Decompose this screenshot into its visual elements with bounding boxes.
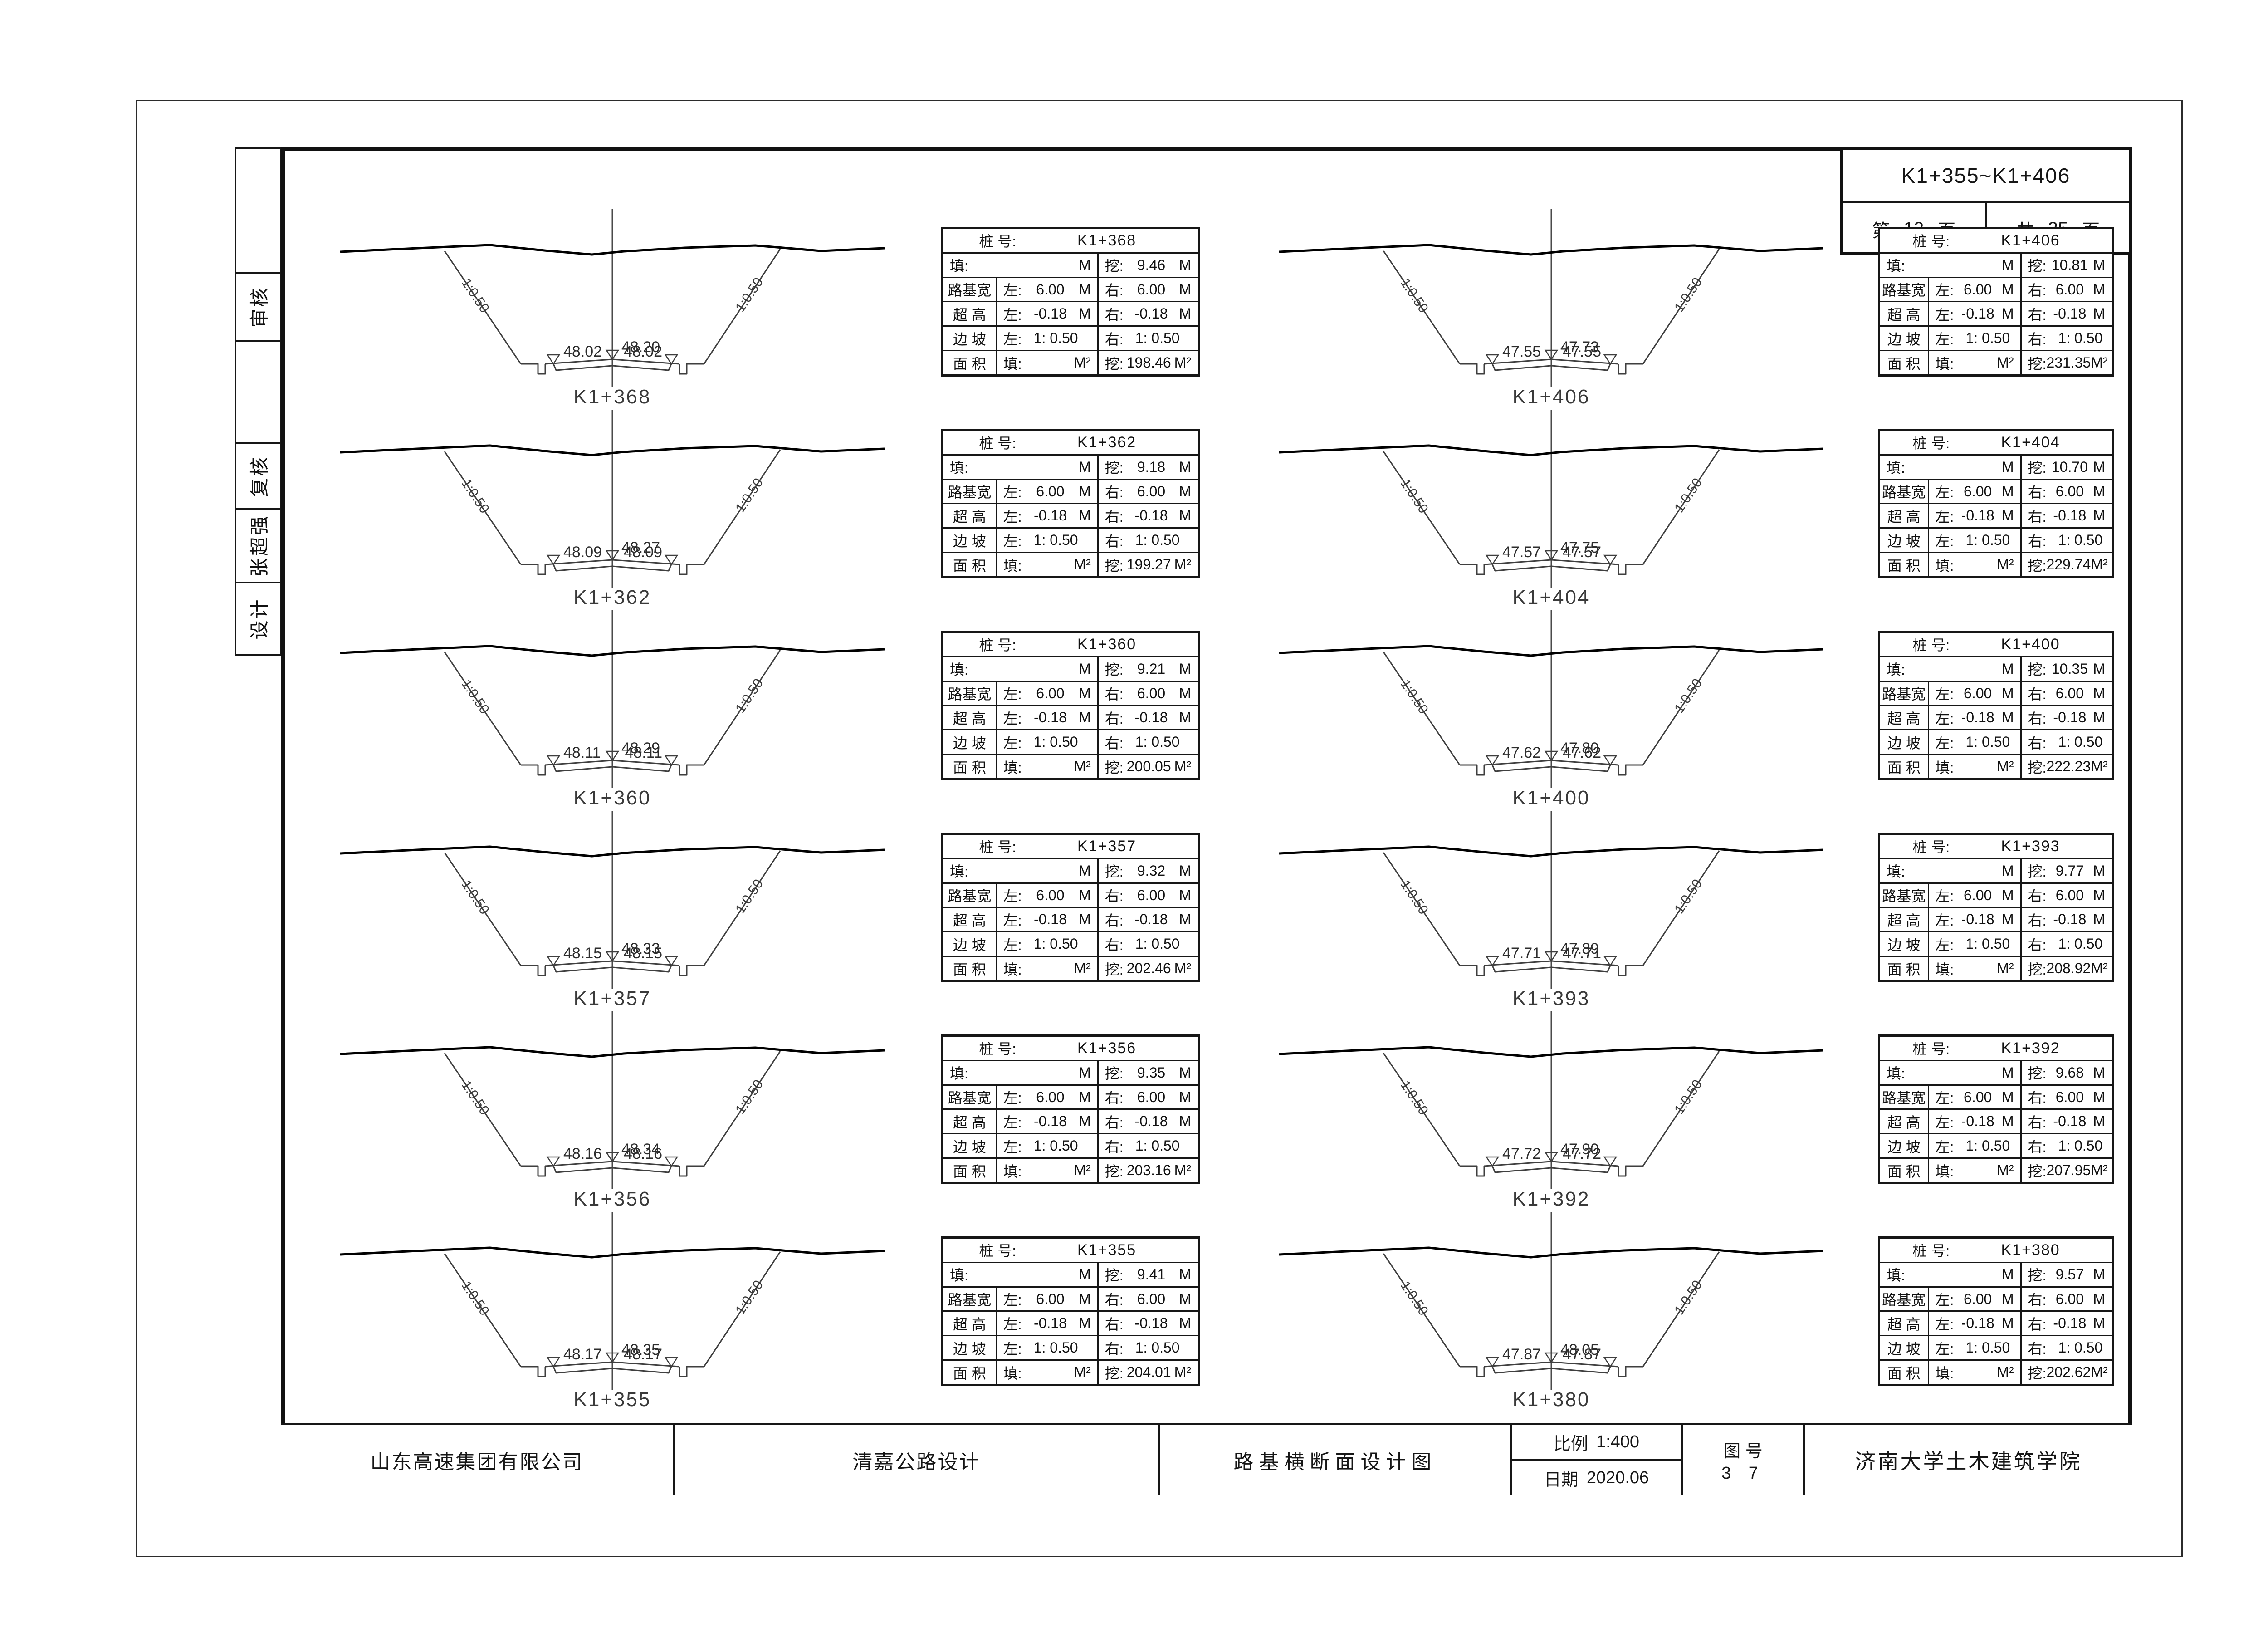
cut-label: 挖: [1105, 456, 1124, 477]
unit-m2: M² [2091, 758, 2107, 775]
station-row-label: 桩 号: [943, 432, 1016, 453]
fill-depth-cell: 填: M [1880, 456, 2020, 479]
area-cut-cell: 挖: 200.05 M² [1097, 755, 1198, 778]
station-row-value: K1+360 [1016, 636, 1198, 653]
slope-left-value: 1: 0.50 [1034, 532, 1078, 549]
station-row-label: 桩 号: [943, 1240, 1016, 1260]
title-block: 山东高速集团有限公司 清嘉公路设计 路基横断面设计图 比例 1:400 日期 2… [281, 1423, 2132, 1495]
cut-label: 挖: [2028, 255, 2047, 275]
roadbed-right-cell: 右: 6.00 M [1097, 1288, 1198, 1311]
side-ditch-left [521, 364, 545, 374]
super-right-value: -0.18 [2053, 507, 2086, 524]
left-label: 左: [1936, 909, 1954, 930]
row-roadbed-width: 路基宽 左: 6.00 M 右: 6.00 M [1880, 277, 2112, 301]
station-row-label: 桩 号: [943, 1038, 1016, 1059]
row-depth: 填: M 挖: 9.35 M [943, 1060, 1198, 1084]
roadbed-right-value: 6.00 [2056, 483, 2084, 500]
unit-m2: M² [2091, 556, 2107, 573]
area-cut-value: 202.46 [1127, 960, 1171, 977]
fill-label: 填: [1887, 1264, 1905, 1285]
roadbed-right-cell: 右: 6.00 M [2020, 682, 2112, 705]
side-ditch-left [521, 765, 545, 775]
unit-m: M [2093, 483, 2105, 500]
slope-ratio-right: 1:0.50 [733, 1077, 766, 1117]
row-superelevation: 超 高 左: -0.18 M 右: -0.18 M [1880, 1108, 2112, 1133]
figure-number-label: 图 号 [1723, 1437, 1763, 1462]
figure-number-cell: 图 号 3 7 [1683, 1425, 1805, 1495]
roadbed-right-cell: 右: 6.00 M [2020, 884, 2112, 907]
section-data-table: 桩 号: K1+357 填: M 挖: 9.32 M 路基宽 左: 6.00 M [941, 833, 1200, 982]
left-label: 左: [1936, 328, 1954, 349]
area-label: 面 积 [943, 755, 996, 778]
cut-label: 挖: [2028, 456, 2047, 477]
row-roadbed-width: 路基宽 左: 6.00 M 右: 6.00 M [943, 1286, 1198, 1311]
section-data-table: 桩 号: K1+392 填: M 挖: 9.68 M 路基宽 左: 6.00 M [1878, 1034, 2114, 1184]
row-roadbed-width: 路基宽 左: 6.00 M 右: 6.00 M [943, 479, 1198, 503]
area-fill-cell: 填: M² [996, 957, 1097, 980]
section-data-table: 桩 号: K1+400 填: M 挖: 10.35 M 路基宽 左: 6.00 … [1878, 631, 2114, 780]
cut-depth-cell: 挖: 9.46 M [1097, 254, 1198, 277]
row-depth: 填: M 挖: 9.32 M [943, 858, 1198, 882]
cut-depth-value: 9.18 [1137, 459, 1165, 475]
right-label: 右: [1105, 279, 1124, 300]
side-slope-label: 边 坡 [943, 529, 996, 552]
roadbed-left-cell: 左: 6.00 M [996, 480, 1097, 503]
fill-depth-cell: 填: M [943, 1263, 1097, 1286]
area-label: 面 积 [1880, 1159, 1928, 1182]
slope-left-cell: 左: 1: 0.50 [996, 1336, 1097, 1359]
cut-depth-value: 9.32 [1137, 863, 1165, 879]
station-row-label: 桩 号: [1880, 432, 1950, 453]
left-label: 左: [1936, 1289, 1954, 1309]
area-fill-cell: 填: M² [996, 1361, 1097, 1384]
left-label: 左: [1936, 1087, 1954, 1108]
station-row-label: 桩 号: [943, 836, 1016, 857]
super-right-cell: 右: -0.18 M [1097, 1312, 1198, 1335]
unit-m: M [1079, 911, 1091, 928]
area-fill-cell: 填: M² [1928, 553, 2020, 576]
elevation-left: 47.62 [1502, 744, 1541, 761]
roadbed-left-cell: 左: 6.00 M [1928, 682, 2020, 705]
row-depth: 填: M 挖: 10.81 M [1880, 252, 2112, 277]
unit-m2: M² [1997, 1364, 2014, 1381]
unit-m2: M² [1997, 354, 2014, 371]
cut-label: 挖: [2028, 958, 2047, 979]
roadbed-right-value: 6.00 [1137, 483, 1165, 500]
row-area: 面 积 填: M² 挖: 204.01 M² [943, 1359, 1198, 1384]
scale-value: 1:400 [1596, 1432, 1639, 1452]
right-label: 右: [2028, 909, 2047, 930]
row-depth: 填: M 挖: 9.18 M [943, 454, 1198, 479]
left-label: 左: [1003, 481, 1022, 502]
roadbed-right-value: 6.00 [1137, 1291, 1165, 1308]
slope-right-cell: 右: 1: 0.50 [1097, 529, 1198, 552]
fill-label: 填: [950, 456, 968, 477]
right-label: 右: [2028, 328, 2047, 349]
right-label: 右: [2028, 885, 2047, 906]
side-slope-label: 边 坡 [943, 1336, 996, 1359]
super-right-value: -0.18 [2053, 1315, 2086, 1332]
slope-ratio-right: 1:0.50 [1672, 1278, 1705, 1318]
cut-label: 挖: [1105, 1062, 1124, 1083]
side-ditch-left [521, 1367, 545, 1377]
area-cut-value: 204.01 [1127, 1364, 1171, 1381]
roadbed-right-cell: 右: 6.00 M [2020, 480, 2112, 503]
roadbed-right-value: 6.00 [1137, 281, 1165, 298]
signature-cell-design: 设计 [236, 583, 280, 654]
fill-depth-cell: 填: M [943, 254, 1097, 277]
slope-left-cell: 左: 1: 0.50 [1928, 327, 2020, 350]
cut-depth-cell: 挖: 10.70 M [2020, 456, 2112, 479]
row-depth: 填: M 挖: 9.57 M [1880, 1262, 2112, 1286]
unit-m2: M² [2091, 960, 2107, 977]
unit-m: M [2093, 507, 2105, 524]
unit-m: M [2093, 887, 2105, 904]
cross-section-drawing: 47.72 47.90 47.72 1:0.50 1:0.50 K1+392 [1279, 1009, 1823, 1209]
super-right-value: -0.18 [1135, 305, 1168, 322]
station-row-value: K1+380 [1950, 1241, 2112, 1259]
cross-section-drawing: 47.87 48.05 47.87 1:0.50 1:0.50 K1+380 [1279, 1209, 1823, 1410]
side-ditch-right [679, 1166, 704, 1176]
right-label: 右: [2028, 683, 2047, 704]
slope-right-cell: 右: 1: 0.50 [2020, 1336, 2112, 1359]
cut-depth-value: 10.81 [2052, 257, 2088, 274]
side-ditch-right [1618, 564, 1643, 574]
cut-label: 挖: [1105, 1264, 1124, 1285]
slope-right-cell: 右: 1: 0.50 [1097, 1134, 1198, 1157]
roadbed-right-value: 6.00 [2056, 281, 2084, 298]
area-cut-value: 231.35 [2046, 354, 2091, 371]
slope-ratio-right: 1:0.50 [1672, 475, 1705, 515]
signature-name: 张超强 [244, 514, 272, 577]
unit-m: M [2002, 305, 2014, 322]
fill-depth-cell: 填: M [1880, 1263, 2020, 1286]
slope-ratio-left: 1:0.50 [459, 1279, 492, 1319]
roadbed-left-cell: 左: 6.00 M [1928, 480, 2020, 503]
station-range: K1+355~K1+406 [1843, 150, 2129, 203]
cross-section: 48.02 48.20 48.02 1:0.50 1:0.50 K1+368 [340, 206, 885, 407]
station-label: K1+362 [574, 586, 651, 608]
superelevation-label: 超 高 [1880, 302, 1928, 325]
unit-m: M [2002, 459, 2014, 475]
elevation-right: 48.15 [624, 945, 662, 962]
superelevation-label: 超 高 [1880, 504, 1928, 527]
super-left-value: -0.18 [1034, 1113, 1067, 1130]
cross-section: 48.09 48.27 48.09 1:0.50 1:0.50 K1+362 [340, 407, 885, 608]
cut-depth-value: 10.70 [2052, 459, 2088, 475]
fill-label: 填: [1003, 958, 1022, 979]
slope-right-value: 1: 0.50 [2058, 330, 2102, 347]
unit-m: M [1079, 305, 1091, 322]
row-roadbed-width: 路基宽 左: 6.00 M 右: 6.00 M [943, 882, 1198, 907]
area-fill-cell: 填: M² [996, 553, 1097, 576]
row-area: 面 积 填: M² 挖: 199.27 M² [943, 552, 1198, 576]
row-side-slope: 边 坡 左: 1: 0.50 右: 1: 0.50 [1880, 527, 2112, 552]
row-superelevation: 超 高 左: -0.18 M 右: -0.18 M [943, 1310, 1198, 1335]
slope-ratio-left: 1:0.50 [459, 677, 492, 717]
slope-right-cell: 右: 1: 0.50 [1097, 932, 1198, 956]
unit-m: M [1179, 709, 1191, 726]
cut-label: 挖: [1105, 658, 1124, 679]
cross-section-drawing: 47.62 47.80 47.62 1:0.50 1:0.50 K1+400 [1279, 608, 1823, 808]
station-row-value: K1+368 [1016, 232, 1198, 250]
unit-m: M [2093, 685, 2105, 702]
left-label: 左: [1936, 732, 1954, 753]
fill-depth-cell: 填: M [943, 1061, 1097, 1084]
right-label: 右: [2028, 934, 2047, 955]
row-superelevation: 超 高 左: -0.18 M 右: -0.18 M [943, 503, 1198, 527]
row-station: 桩 号: K1+380 [1880, 1239, 2112, 1262]
fill-depth-cell: 填: M [943, 657, 1097, 681]
roadbed-right-value: 6.00 [2056, 1089, 2084, 1106]
cut-label: 挖: [1105, 1362, 1124, 1383]
cross-section-drawing: 47.55 47.73 47.55 1:0.50 1:0.50 K1+406 [1279, 206, 1823, 407]
row-roadbed-width: 路基宽 左: 6.00 M 右: 6.00 M [1880, 479, 2112, 503]
area-cut-cell: 挖: 222.23 M² [2020, 755, 2112, 778]
unit-m: M [2002, 1113, 2014, 1130]
right-label: 右: [1105, 1289, 1124, 1309]
area-cut-value: 203.16 [1127, 1162, 1171, 1179]
station-label: K1+404 [1513, 586, 1590, 608]
cut-depth-cell: 挖: 9.18 M [1097, 456, 1198, 479]
unit-m: M [1179, 1089, 1191, 1106]
area-label: 面 积 [1880, 755, 1928, 778]
right-label: 右: [2028, 279, 2047, 300]
fill-label: 填: [950, 1062, 968, 1083]
cut-depth-cell: 挖: 9.35 M [1097, 1061, 1198, 1084]
cross-section: 48.11 48.29 48.11 1:0.50 1:0.50 K1+360 [340, 608, 885, 808]
area-fill-cell: 填: M² [1928, 1361, 2020, 1384]
cross-section: 47.57 47.75 47.57 1:0.50 1:0.50 K1+404 [1279, 407, 1823, 608]
area-label: 面 积 [943, 553, 996, 576]
cut-label: 挖: [2028, 1160, 2047, 1181]
unit-m: M [1179, 257, 1191, 274]
cross-section: 47.62 47.80 47.62 1:0.50 1:0.50 K1+400 [1279, 608, 1823, 808]
section-data-table: 桩 号: K1+360 填: M 挖: 9.21 M 路基宽 左: 6.00 M [941, 631, 1200, 780]
unit-m: M [2093, 1113, 2105, 1130]
right-label: 右: [1105, 885, 1124, 906]
side-ditch-right [1618, 1166, 1643, 1176]
row-area: 面 积 填: M² 挖: 198.46 M² [943, 350, 1198, 374]
fill-label: 填: [1936, 353, 1954, 373]
station-row-label: 桩 号: [1880, 836, 1950, 857]
area-cut-value: 222.23 [2046, 758, 2091, 775]
roadbed-width-label: 路基宽 [943, 682, 996, 705]
elevation-left: 48.02 [563, 343, 602, 360]
right-label: 右: [2028, 505, 2047, 526]
right-label: 右: [1105, 1111, 1124, 1132]
unit-m2: M² [1074, 1162, 1090, 1179]
side-ditch-left [1460, 564, 1484, 574]
row-roadbed-width: 路基宽 左: 6.00 M 右: 6.00 M [1880, 1084, 2112, 1109]
roadbed-width-label: 路基宽 [1880, 1288, 1928, 1311]
slope-left-cell: 左: 1: 0.50 [996, 1134, 1097, 1157]
slope-left-cell: 左: 1: 0.50 [996, 529, 1097, 552]
super-right-cell: 右: -0.18 M [1097, 1110, 1198, 1133]
slope-ratio-right: 1:0.50 [733, 1278, 766, 1318]
unit-m2: M² [1074, 354, 1090, 371]
area-fill-cell: 填: M² [1928, 755, 2020, 778]
unit-m: M [1079, 507, 1091, 524]
roadbed-right-cell: 右: 6.00 M [2020, 1086, 2112, 1109]
row-depth: 填: M 挖: 9.77 M [1880, 858, 2112, 882]
station-row-label: 桩 号: [1880, 1240, 1950, 1260]
unit-m2: M² [2091, 1364, 2107, 1381]
fill-label: 填: [1003, 554, 1022, 575]
elevation-right: 48.02 [624, 343, 662, 360]
cut-depth-value: 9.21 [1137, 661, 1165, 677]
unit-m2: M² [1074, 1364, 1090, 1381]
unit-m: M [2093, 459, 2105, 475]
row-depth: 填: M 挖: 9.41 M [943, 1262, 1198, 1286]
unit-m: M [2093, 281, 2105, 298]
left-label: 左: [1003, 1087, 1022, 1108]
station-row-value: K1+355 [1016, 1241, 1198, 1259]
slope-left-value: 1: 0.50 [1034, 1339, 1078, 1356]
station-row-label: 桩 号: [1880, 1038, 1950, 1059]
roadbed-right-cell: 右: 6.00 M [2020, 1288, 2112, 1311]
roadbed-width-label: 路基宽 [1880, 884, 1928, 907]
elevation-left: 47.71 [1502, 945, 1541, 962]
superelevation-label: 超 高 [1880, 1110, 1928, 1133]
row-superelevation: 超 高 左: -0.18 M 右: -0.18 M [943, 705, 1198, 729]
slope-left-value: 1: 0.50 [1965, 1137, 2010, 1154]
super-left-value: -0.18 [1034, 709, 1067, 726]
super-right-cell: 右: -0.18 M [2020, 908, 2112, 931]
slope-right-value: 1: 0.50 [2058, 1339, 2102, 1356]
slope-left-cell: 左: 1: 0.50 [1928, 932, 2020, 956]
cut-label: 挖: [2028, 353, 2047, 373]
roadbed-right-cell: 右: 6.00 M [1097, 884, 1198, 907]
super-left-cell: 左: -0.18 M [1928, 504, 2020, 527]
elevation-right: 48.17 [624, 1346, 662, 1363]
area-label: 面 积 [1880, 553, 1928, 576]
fill-label: 填: [1003, 1362, 1022, 1383]
section-data-table: 桩 号: K1+355 填: M 挖: 9.41 M 路基宽 左: 6.00 M [941, 1236, 1200, 1386]
unit-m: M [2093, 305, 2105, 322]
row-station: 桩 号: K1+360 [943, 633, 1198, 656]
area-label: 面 积 [943, 1361, 996, 1384]
slope-left-value: 1: 0.50 [1965, 936, 2010, 952]
row-station: 桩 号: K1+404 [1880, 431, 2112, 454]
left-label: 左: [1003, 707, 1022, 728]
right-label: 右: [2028, 1338, 2047, 1358]
roadbed-right-value: 6.00 [1137, 1089, 1165, 1106]
row-depth: 填: M 挖: 9.68 M [1880, 1060, 2112, 1084]
cross-section-drawing: 48.16 48.34 48.16 1:0.50 1:0.50 K1+356 [340, 1009, 885, 1209]
row-side-slope: 边 坡 左: 1: 0.50 右: 1: 0.50 [943, 1335, 1198, 1359]
cut-label: 挖: [2028, 1264, 2047, 1285]
right-label: 右: [1105, 530, 1124, 551]
roadbed-right-value: 6.00 [1137, 887, 1165, 904]
slope-ratio-left: 1:0.50 [459, 877, 492, 917]
cut-depth-value: 9.77 [2056, 863, 2084, 879]
signature-cell-blank [236, 342, 280, 444]
right-label: 右: [1105, 683, 1124, 704]
slope-right-value: 1: 0.50 [1135, 1339, 1180, 1356]
fill-label: 填: [1887, 456, 1905, 477]
right-label: 右: [1105, 934, 1124, 955]
row-side-slope: 边 坡 左: 1: 0.50 右: 1: 0.50 [1880, 325, 2112, 350]
row-superelevation: 超 高 左: -0.18 M 右: -0.18 M [943, 1108, 1198, 1133]
fill-depth-cell: 填: M [1880, 254, 2020, 277]
left-label: 左: [1003, 1136, 1022, 1157]
roadbed-width-label: 路基宽 [943, 1086, 996, 1109]
station-row-value: K1+404 [1950, 434, 2112, 451]
unit-m: M [2002, 281, 2014, 298]
slope-left-cell: 左: 1: 0.50 [996, 932, 1097, 956]
superelevation-label: 超 高 [943, 908, 996, 931]
elevation-left: 48.17 [563, 1346, 602, 1363]
fill-label: 填: [950, 860, 968, 881]
slope-left-value: 1: 0.50 [1965, 1339, 2010, 1356]
roadbed-left-cell: 左: 6.00 M [996, 884, 1097, 907]
cross-section: 48.17 48.35 48.17 1:0.50 1:0.50 K1+355 [340, 1209, 885, 1410]
slope-right-value: 1: 0.50 [1135, 330, 1180, 347]
roadbed-left-cell: 左: 6.00 M [1928, 884, 2020, 907]
side-ditch-right [1618, 765, 1643, 775]
super-left-cell: 左: -0.18 M [996, 302, 1097, 325]
area-cut-cell: 挖: 204.01 M² [1097, 1361, 1198, 1384]
unit-m: M [1079, 257, 1091, 274]
unit-m2: M² [1074, 960, 1090, 977]
side-ditch-left [1460, 1166, 1484, 1176]
cut-label: 挖: [2028, 554, 2047, 575]
slope-right-value: 1: 0.50 [2058, 734, 2102, 750]
slope-right-cell: 右: 1: 0.50 [1097, 730, 1198, 754]
row-superelevation: 超 高 左: -0.18 M 右: -0.18 M [1880, 301, 2112, 325]
cut-label: 挖: [1105, 353, 1124, 373]
row-superelevation: 超 高 左: -0.18 M 右: -0.18 M [1880, 1310, 2112, 1335]
row-roadbed-width: 路基宽 左: 6.00 M 右: 6.00 M [943, 681, 1198, 705]
unit-m: M [1179, 483, 1191, 500]
right-label: 右: [1105, 1136, 1124, 1157]
unit-m: M [1079, 483, 1091, 500]
project-name: 清嘉公路设计 [675, 1425, 1160, 1495]
area-cut-cell: 挖: 198.46 M² [1097, 351, 1198, 374]
area-fill-cell: 填: M² [1928, 957, 2020, 980]
elevation-right: 48.16 [624, 1145, 662, 1162]
side-ditch-left [1460, 364, 1484, 374]
roadbed-left-cell: 左: 6.00 M [996, 1086, 1097, 1109]
left-label: 左: [1936, 1136, 1954, 1157]
area-cut-cell: 挖: 203.16 M² [1097, 1159, 1198, 1182]
super-left-cell: 左: -0.18 M [1928, 908, 2020, 931]
station-row-label: 桩 号: [943, 230, 1016, 251]
row-station: 桩 号: K1+400 [1880, 633, 2112, 656]
unit-m: M [2002, 1266, 2014, 1283]
signature-cell-recheck: 复核 [236, 444, 280, 510]
unit-m2: M² [1174, 758, 1191, 775]
unit-m: M [2002, 257, 2014, 274]
elevation-left: 47.87 [1502, 1346, 1541, 1363]
roadbed-left-value: 6.00 [1036, 1291, 1064, 1308]
roadbed-right-cell: 右: 6.00 M [1097, 278, 1198, 301]
unit-m: M [1179, 281, 1191, 298]
super-left-value: -0.18 [1961, 1113, 1994, 1130]
row-roadbed-width: 路基宽 左: 6.00 M 右: 6.00 M [943, 277, 1198, 301]
cut-label: 挖: [1105, 1160, 1124, 1181]
left-label: 左: [1003, 279, 1022, 300]
unit-m: M [1079, 1315, 1091, 1332]
fill-label: 填: [1887, 255, 1905, 275]
date-label: 日期 [1544, 1466, 1579, 1490]
side-ditch-right [1618, 364, 1643, 374]
cut-depth-value: 9.35 [1137, 1064, 1165, 1081]
left-label: 左: [1936, 505, 1954, 526]
superelevation-label: 超 高 [1880, 908, 1928, 931]
roadbed-left-value: 6.00 [1964, 483, 1992, 500]
